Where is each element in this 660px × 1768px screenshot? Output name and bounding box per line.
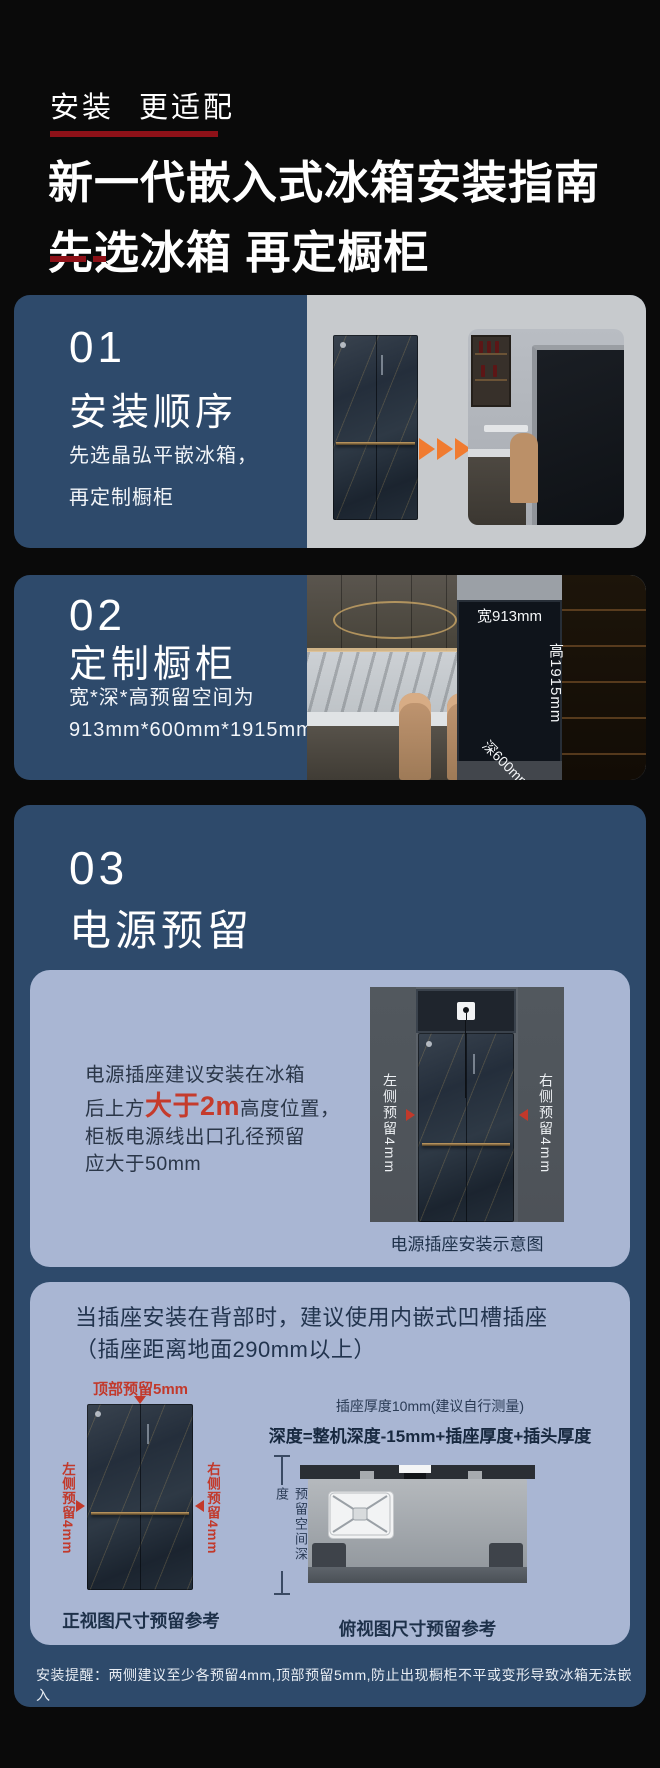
fridge-handle-bar [336, 442, 414, 445]
wall-tab [468, 1471, 482, 1479]
reserved-depth-label: 预留空间深度 [272, 1487, 310, 1569]
step1-illustration [307, 295, 646, 548]
step1-number: 01 [69, 323, 126, 373]
recessed-socket-plate [399, 1465, 431, 1473]
recess-title-line2: （插座距离地面290mm以上） [75, 1332, 376, 1364]
wine-bottle [479, 341, 483, 353]
step3-card: 03 电源预留 电源插座建议安装在冰箱 后上方大于2m高度位置， 柜板电源线出口… [14, 805, 646, 1707]
display-shelving [562, 575, 646, 780]
power-cord-line [465, 1020, 466, 1098]
step2-desc-line2: 913mm*600mm*1915mm [69, 719, 314, 742]
bar-chair [510, 433, 538, 503]
wall-tab [360, 1471, 374, 1479]
fridge-front-image [418, 1033, 514, 1222]
fridge-front-edge [308, 1567, 527, 1583]
brand-logo-dot [340, 342, 346, 348]
forward-arrow-icon [437, 438, 453, 460]
fridge-front-image [333, 335, 418, 520]
page-title-line1: 新一代嵌入式冰箱安装指南 [48, 146, 600, 211]
forward-arrow-icon [419, 438, 435, 460]
title-accent-dashes [50, 256, 106, 274]
accent-dash-short [93, 256, 106, 262]
island-countertop [307, 712, 469, 726]
step2-card: 02 定制橱柜 宽*深*高预留空间为 913mm*600mm*1915mm 宽9… [14, 575, 646, 780]
fridge-handle-bar [91, 1512, 189, 1515]
front-view-caption: 正视图尺寸预留参考 [35, 1608, 247, 1633]
kitchen-photo [468, 329, 624, 525]
step3-title: 电源预留 [69, 897, 253, 958]
promo-page: 安装 更适配 新一代嵌入式冰箱安装指南 先选冰箱 再定橱柜 01 安装顺序 先选… [0, 0, 660, 1768]
wine-shelf [475, 379, 507, 381]
fridge-door-seam [466, 1033, 467, 1222]
socket-icon [457, 1002, 475, 1020]
island-base [307, 726, 469, 780]
step2-illustration: 宽913mm 高1915mm 深600mm [307, 575, 646, 780]
wine-bottle [495, 341, 499, 353]
fridge-handle-bar [422, 1143, 510, 1146]
wine-bottle [493, 365, 497, 377]
section-kicker: 安装 更适配 [50, 84, 235, 126]
step2-title: 定制橱柜 [69, 633, 237, 688]
fridge-door-seam [376, 335, 377, 520]
forward-arrows [419, 438, 473, 465]
wine-bottle [487, 341, 491, 353]
socket-plug-stem [466, 1013, 468, 1020]
step1-desc-line2: 再定制橱柜 [69, 481, 174, 510]
accent-dash-long [50, 256, 86, 262]
gap-right-label: 右侧预留4mm [536, 1073, 556, 1174]
step1-desc-line1: 先选晶弘平嵌冰箱， [69, 439, 258, 468]
dimension-line-top [281, 1457, 283, 1485]
gap-marker-right-icon [406, 1109, 415, 1121]
kicker-underline [50, 131, 218, 137]
brand-logo-dot [95, 1411, 101, 1417]
fridge-door-seam [140, 1404, 141, 1590]
front-gap-right-label: 右侧预留4mm [202, 1462, 222, 1555]
compressor-plate [328, 1491, 394, 1539]
dimension-cap-bottom [274, 1593, 290, 1595]
step3-number: 03 [69, 841, 128, 895]
socket-text-line2-pre: 后上方 [85, 1098, 145, 1120]
socket-text-line3: 柜板电源线出口孔径预留 [85, 1120, 305, 1149]
fridge-top-view [300, 1465, 535, 1595]
compressor-plate-pattern [329, 1492, 391, 1536]
top-view-caption: 俯视图尺寸预留参考 [300, 1616, 535, 1641]
socket-text-line2: 后上方大于2m高度位置， [85, 1084, 340, 1123]
fridge-display-strip [381, 355, 383, 375]
niche-height-label: 高1915mm [545, 643, 566, 758]
recessed-socket-panel: 当插座安装在背部时，建议使用内嵌式凹槽插座 （插座距离地面290mm以上） 顶部… [30, 1282, 630, 1645]
socket-text-line1: 电源插座建议安装在冰箱 [85, 1058, 305, 1087]
wine-cabinet [471, 335, 511, 407]
front-gap-left-label: 左侧预留4mm [57, 1462, 77, 1555]
wine-shelf [475, 353, 507, 355]
socket-diagram-caption: 电源插座安装示意图 [360, 1230, 574, 1255]
bar-chair [399, 693, 431, 780]
step1-card: 01 安装顺序 先选晶弘平嵌冰箱， 再定制橱柜 [14, 295, 646, 548]
socket-thickness-note: 插座厚度10mm(建议自行测量) [280, 1396, 580, 1416]
socket-position-panel: 电源插座建议安装在冰箱 后上方大于2m高度位置， 柜板电源线出口孔径预留 应大于… [30, 970, 630, 1267]
fridge-display-strip [147, 1424, 149, 1444]
step2-desc-line1: 宽*深*高预留空间为 [69, 681, 255, 710]
bar-table [484, 425, 528, 432]
gap-left-label: 左侧预留4mm [380, 1073, 400, 1174]
dimension-line-bottom [281, 1571, 283, 1593]
fridge-front-view [87, 1404, 193, 1590]
dark-doorway [532, 345, 624, 525]
socket-text-height-emphasis: 大于2m [145, 1091, 240, 1121]
front-gap-marker-right-icon [76, 1500, 85, 1512]
install-reminder-note: 安装提醒：两侧建议至少各预留4mm,顶部预留5mm,防止出现橱柜不平或变形导致冰… [36, 1665, 646, 1705]
ring-chandelier [333, 601, 457, 639]
gap-marker-left-icon [519, 1109, 528, 1121]
step1-title: 安装顺序 [69, 381, 237, 436]
niche-width-label: 宽913mm [457, 605, 562, 626]
depth-formula: 深度=整机深度-15mm+插座厚度+插头厚度 [255, 1422, 605, 1447]
brand-logo-dot [426, 1041, 432, 1047]
front-gap-marker-left-icon [195, 1500, 204, 1512]
socket-text-line4: 应大于50mm [85, 1147, 201, 1176]
wine-bottle [481, 365, 485, 377]
recess-title-line1: 当插座安装在背部时，建议使用内嵌式凹槽插座 [75, 1300, 548, 1332]
top-gap-marker-icon [134, 1396, 146, 1404]
fridge-display-strip [473, 1054, 475, 1074]
socket-text-line2-post: 高度位置， [240, 1098, 340, 1120]
socket-install-diagram: 左侧预留4mm 右侧预留4mm [370, 987, 564, 1222]
marble-backsplash [307, 652, 457, 712]
